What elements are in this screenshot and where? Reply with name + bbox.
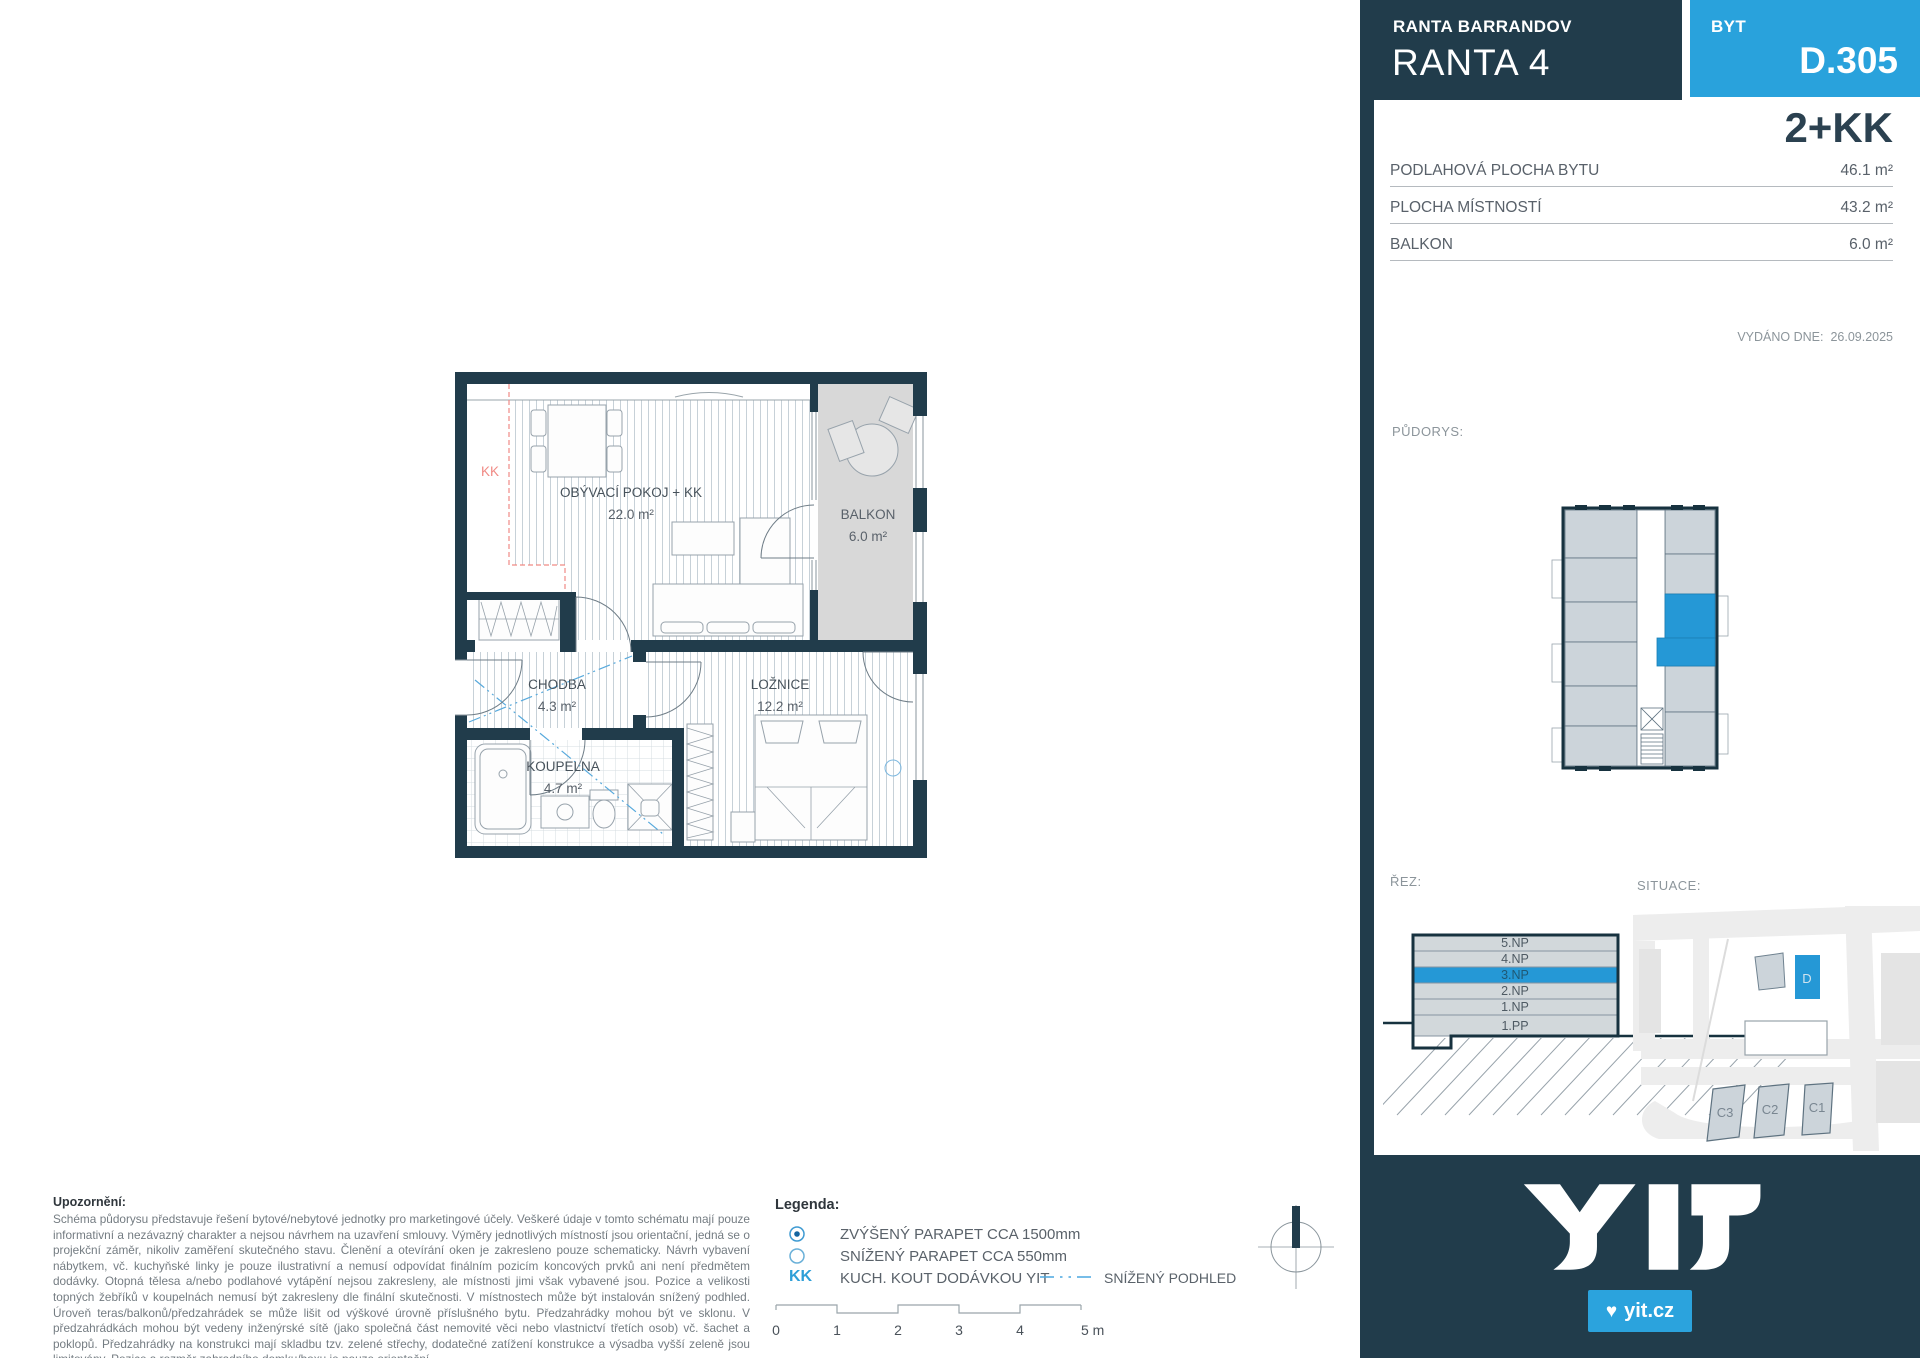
scale-tick: 1	[833, 1322, 841, 1338]
hall-area: 4.3 m²	[538, 699, 577, 714]
area-row-value: 6.0 m²	[1849, 236, 1893, 254]
yit-cz-button[interactable]: ♥ yit.cz	[1588, 1290, 1692, 1332]
building-name: RANTA 4	[1392, 42, 1550, 84]
bedroom-area: 12.2 m²	[757, 699, 803, 714]
scale-tick: 0	[772, 1322, 780, 1338]
table-row: PLOCHA MÍSTNOSTÍ 43.2 m²	[1390, 187, 1893, 224]
area-row-value: 46.1 m²	[1840, 162, 1893, 180]
disclaimer: Upozornění: Schéma půdorysu představuje …	[53, 1195, 750, 1358]
building-c2-label: C2	[1762, 1102, 1779, 1117]
kitchen-counter	[467, 393, 810, 401]
balcony-area: 6.0 m²	[849, 529, 888, 544]
legend-icons	[786, 1224, 808, 1274]
floor-label-highlighted: 3.NP	[1501, 968, 1529, 982]
floor-label: 5.NP	[1501, 936, 1529, 950]
balcony-label: BALKON	[841, 507, 896, 522]
issue-date-value: 26.09.2025	[1830, 330, 1893, 344]
issue-date: VYDÁNO DNE: 26.09.2025	[1390, 330, 1893, 344]
floor-label: 4.NP	[1501, 952, 1529, 966]
disposition: 2+KK	[1390, 104, 1893, 152]
area-row-label: BALKON	[1390, 236, 1453, 254]
floor-label: 1.PP	[1501, 1019, 1528, 1033]
scale-tick: 2	[894, 1322, 902, 1338]
situace-label: SITUACE:	[1637, 878, 1701, 893]
kk-label: KK	[481, 464, 499, 479]
bench	[731, 812, 755, 842]
unit-number: D.305	[1799, 40, 1898, 82]
building-gray	[1755, 953, 1785, 990]
table-row: PODLAHOVÁ PLOCHA BYTU 46.1 m²	[1390, 150, 1893, 187]
lowered-ceiling-icon	[1040, 1272, 1096, 1282]
lowered-sill-icon	[790, 1249, 804, 1263]
toilet	[590, 790, 618, 800]
legend-kitchen: KUCH. KOUT DODÁVKOU YIT	[840, 1270, 1049, 1287]
area-row-value: 43.2 m²	[1840, 199, 1893, 217]
bathtub	[475, 744, 531, 834]
floorplan-sheet: KK OBÝVACÍ POKOJ + KK 22.0 m² BALKON 6.0…	[0, 0, 1920, 1358]
pudorys-label: PŮDORYS:	[1392, 424, 1464, 439]
building-key-plan	[1545, 496, 1735, 781]
brand-footer: ♥ yit.cz	[1360, 1155, 1920, 1358]
legend-kk-symbol: KK	[789, 1268, 812, 1286]
apartment-floorplan: KK OBÝVACÍ POKOJ + KK 22.0 m² BALKON 6.0…	[435, 350, 945, 870]
stair-core	[1641, 708, 1663, 764]
project-name: RANTA BARRANDOV	[1393, 17, 1572, 37]
hall-label: CHODBA	[528, 677, 586, 692]
site-map: D C3 C2 C1	[1633, 893, 1920, 1155]
area-row-label: PLOCHA MÍSTNOSTÍ	[1390, 199, 1542, 217]
legend-title: Legenda:	[775, 1197, 839, 1213]
legend-raised-sill: ZVÝŠENÝ PARAPET CCA 1500mm	[840, 1226, 1080, 1243]
issue-date-label: VYDÁNO DNE:	[1737, 330, 1823, 344]
area-row-label: PODLAHOVÁ PLOCHA BYTU	[1390, 162, 1599, 180]
living-room-label: OBÝVACÍ POKOJ + KK	[560, 485, 702, 500]
building-outline-white	[1745, 1021, 1827, 1055]
area-table: PODLAHOVÁ PLOCHA BYTU 46.1 m² PLOCHA MÍS…	[1390, 150, 1893, 261]
project-header: RANTA BARRANDOV RANTA 4	[1360, 0, 1682, 100]
scale-tick: 4	[1016, 1322, 1024, 1338]
heart-icon: ♥	[1606, 1302, 1617, 1321]
unit-badge: BYT D.305	[1690, 0, 1920, 97]
rez-label: ŘEZ:	[1390, 874, 1422, 889]
coffee-table	[672, 522, 734, 555]
legend-lowered-sill: SNÍŽENÝ PARAPET CCA 550mm	[840, 1248, 1067, 1265]
scale-tick: 3	[955, 1322, 963, 1338]
dining-table	[548, 405, 606, 477]
building-c1-label: C1	[1809, 1100, 1826, 1115]
building-d-label: D	[1802, 971, 1811, 986]
bathroom-area: 4.7 m²	[544, 781, 583, 796]
bathroom-label: KOUPELNA	[526, 759, 600, 774]
bedroom-label: LOŽNICE	[751, 677, 810, 692]
yit-logo	[1508, 1181, 1773, 1273]
table-row: BALKON 6.0 m²	[1390, 224, 1893, 261]
scale-labels: 0 1 2 3 4 5 m	[772, 1322, 1104, 1338]
legend-ceiling: SNÍŽENÝ PODHLED	[1104, 1270, 1236, 1286]
floor-label: 1.NP	[1501, 1000, 1529, 1014]
yit-site-label: yit.cz	[1624, 1300, 1674, 1323]
unit-label: BYT	[1711, 17, 1746, 37]
disclaimer-title: Upozornění:	[53, 1195, 750, 1209]
washbasin	[541, 796, 589, 828]
north-compass-icon	[1252, 1198, 1342, 1298]
building-c3-label: C3	[1717, 1105, 1734, 1120]
living-room-area: 22.0 m²	[608, 507, 654, 522]
scale-bar: 0 1 2 3 4 5 m	[765, 1293, 1125, 1345]
highlighted-unit	[1657, 594, 1715, 666]
disclaimer-body: Schéma půdorysu představuje řešení bytov…	[53, 1212, 750, 1358]
floor-label: 2.NP	[1501, 984, 1529, 998]
scale-tick: 5 m	[1081, 1322, 1104, 1338]
